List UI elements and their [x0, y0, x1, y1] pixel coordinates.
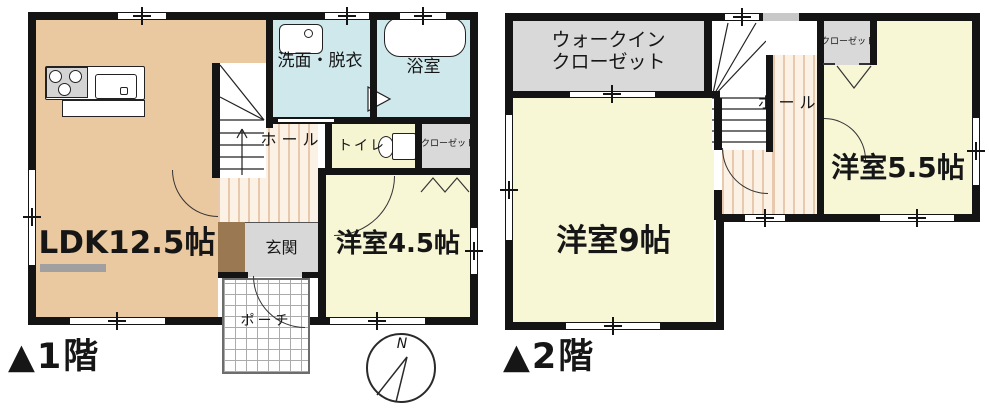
sliding-door — [278, 118, 334, 123]
room-label-closet-1f: クローゼット — [421, 139, 471, 149]
room-ldk — [36, 20, 218, 317]
window-cross-icon — [108, 312, 126, 330]
folding-door-icon-closet-2f — [836, 65, 872, 90]
folding-door-icon-closet-1f — [420, 176, 470, 193]
wall — [302, 272, 318, 278]
window-cross-icon — [133, 7, 151, 25]
room-label-entrance: 玄関 — [245, 239, 318, 257]
stove-icon — [46, 67, 88, 98]
window-cross-icon — [500, 181, 518, 199]
floor1-label: ▲1階 — [8, 337, 100, 377]
floorplan-canvas: LDK12.5帖 洗面・脱衣 浴室 ホール トイレ クローゼット 洋室4.5帖 … — [0, 0, 989, 408]
kitchen-sink-icon — [95, 74, 137, 99]
room-hall-2f — [773, 55, 817, 214]
window-cross-icon — [368, 312, 386, 330]
wall — [212, 63, 220, 178]
window-cross-icon — [414, 7, 432, 25]
window-cross-icon — [604, 317, 622, 335]
window-cross-icon — [756, 209, 774, 227]
window-cross-icon — [603, 85, 621, 103]
wall — [704, 21, 712, 98]
wall — [714, 190, 722, 220]
room-label-toilet: トイレ — [330, 138, 394, 154]
toilet-tank-icon — [392, 133, 416, 160]
walk-in-closet-line2: クローゼット — [513, 52, 704, 74]
window-cross-icon — [908, 209, 926, 227]
washbasin-icon — [279, 24, 323, 54]
room-label-hall-1f: ホール — [248, 131, 336, 149]
sideboard-icon — [40, 264, 106, 272]
wall — [28, 12, 36, 325]
window-cross-icon — [23, 208, 41, 226]
stairs-1f — [218, 63, 266, 178]
room-label-washroom: 洗面・脱衣 — [266, 52, 374, 72]
entrance-step — [218, 222, 245, 276]
stairs-1f-icon — [218, 63, 266, 178]
room-label-western-4-5: 洋室4.5帖 — [318, 230, 478, 260]
room-label-western-9: 洋室9帖 — [513, 224, 714, 260]
window — [505, 115, 513, 240]
wall — [370, 20, 377, 124]
room-label-closet-2f: クローゼット — [821, 37, 873, 47]
floor2-label: ▲2階 — [503, 337, 595, 377]
room-label-ldk: LDK12.5帖 — [36, 226, 218, 262]
room-western-9 — [513, 98, 714, 322]
wall — [716, 214, 724, 330]
window — [763, 13, 799, 21]
wall — [218, 272, 248, 278]
wall — [714, 98, 722, 150]
room-label-western-5-5: 洋室5.5帖 — [808, 152, 988, 184]
wall — [859, 63, 870, 65]
room-label-walk-in-closet: ウォークイン クローゼット — [513, 30, 704, 74]
room-label-hall-2f: ホール — [746, 94, 832, 112]
wall — [266, 20, 273, 128]
kitchen-counter-low-icon — [62, 100, 145, 117]
window-cross-icon — [733, 8, 751, 26]
window-cross-icon — [338, 7, 356, 25]
room-label-bathroom: 浴室 — [377, 58, 470, 78]
walk-in-closet-line1: ウォークイン — [513, 30, 704, 52]
wall — [823, 63, 835, 65]
wall — [817, 21, 824, 214]
room-ldk-extension — [212, 20, 273, 65]
room-label-porch: ポーチ — [222, 313, 310, 329]
wall — [318, 168, 478, 175]
compass-north-label: N — [394, 336, 410, 352]
